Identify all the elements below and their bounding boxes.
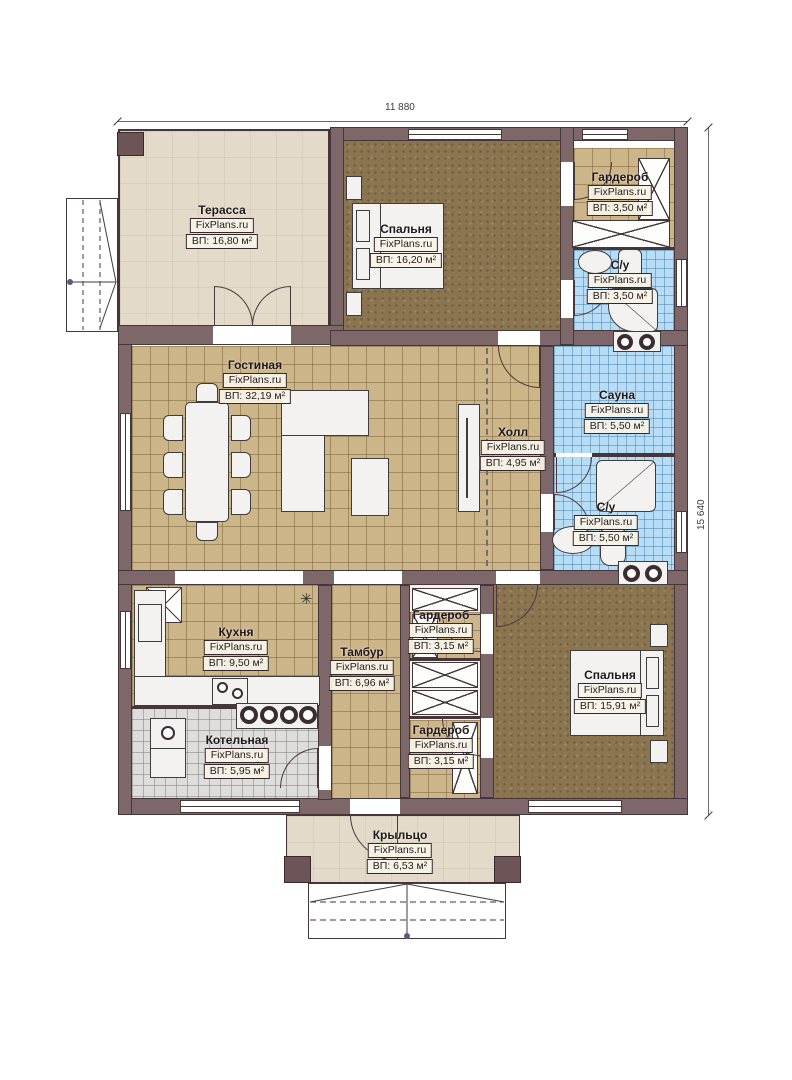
watermark: FixPlans.ru [374,237,439,252]
column-terrace [117,132,144,156]
room-area: ВП: 3,15 м² [408,639,474,654]
watermark: FixPlans.ru [578,683,643,698]
vent-ring-icon [617,334,633,350]
room-name: Спальня [380,222,432,236]
wardrobe-shelf [572,220,670,248]
chair [163,489,183,515]
room-name: Холл [498,425,528,439]
window-kitchen [120,611,131,669]
nightstand [346,176,362,200]
doorway-entrance [350,799,400,814]
room-name: Тамбур [340,645,384,659]
burner-icon [232,688,243,699]
room-label-porch: Крыльцо FixPlans.ru ВП: 6,53 м² [367,828,433,874]
room-name: Гардероб [592,170,649,184]
room-label-bedroom1: Спальня FixPlans.ru ВП: 16,20 м² [370,222,442,268]
pillow [356,210,370,242]
room-label-bath2: С/у FixPlans.ru ВП: 5,50 м² [573,500,639,546]
window-bedroom2 [528,800,622,813]
boiler-line [151,748,185,749]
porch-steps [308,883,506,939]
chair [163,452,183,478]
dining-table [185,402,229,522]
watermark: FixPlans.ru [190,218,255,233]
doorway-bedroom2 [496,571,540,584]
dimension-width: 11 880 [385,102,415,113]
watermark: FixPlans.ru [588,185,653,200]
room-area: ВП: 3,50 м² [587,201,653,216]
burner-icon [260,706,278,724]
room-area: ВП: 4,95 м² [480,456,546,471]
room-label-wardrobe2: Гардероб FixPlans.ru ВП: 3,15 м² [408,608,474,654]
room-label-hall: Холл FixPlans.ru ВП: 4,95 м² [480,425,546,471]
room-name: Сауна [599,388,635,402]
watermark: FixPlans.ru [481,440,546,455]
chair [196,383,218,402]
kitchen-appliance [138,604,162,642]
room-label-living: Гостиная FixPlans.ru ВП: 32,19 м² [219,358,291,404]
watermark: FixPlans.ru [205,748,270,763]
watermark: FixPlans.ru [330,660,395,675]
room-label-tambour: Тамбур FixPlans.ru ВП: 6,96 м² [329,645,395,691]
burner-icon [240,706,258,724]
room-area: ВП: 3,50 м² [587,289,653,304]
room-name: Кухня [218,625,253,639]
tv-icon [466,418,468,498]
wall-right [674,127,688,815]
dimension-height: 15 640 [696,499,707,530]
room-area: ВП: 9,50 м² [203,656,269,671]
room-area: ВП: 5,95 м² [204,764,270,779]
room-label-bedroom2: Спальня FixPlans.ru ВП: 15,91 м² [574,668,646,714]
room-area: ВП: 3,15 м² [408,754,474,769]
room-area: ВП: 5,50 м² [584,419,650,434]
window-bedroom1 [408,129,502,140]
chair [163,415,183,441]
window-boiler [180,800,300,813]
window-wardrobe1 [582,129,628,140]
dimension-line-right [708,127,709,815]
watermark: FixPlans.ru [409,738,474,753]
room-name: Гардероб [413,723,470,737]
vent-ring-icon [639,334,655,350]
room-area: ВП: 32,19 м² [219,389,291,404]
watermark: FixPlans.ru [588,273,653,288]
terrace-steps [66,198,118,332]
room-area: ВП: 16,80 м² [186,234,258,249]
vent-ring-icon [623,565,640,582]
chair [231,452,251,478]
doorway-boiler [319,746,331,790]
room-area: ВП: 6,53 м² [367,859,433,874]
wardrobe-shelf [412,690,478,715]
chair [231,415,251,441]
room-name: Гардероб [413,608,470,622]
room-label-boiler: Котельная FixPlans.ru ВП: 5,95 м² [204,733,270,779]
nightstand [650,624,668,647]
sofa-arm [281,390,369,436]
column-porch-right [494,856,521,883]
dimension-line-top [118,121,688,122]
room-area: ВП: 15,91 м² [574,699,646,714]
window-bath1 [676,259,687,307]
window-bath2 [676,511,687,553]
wall-terrace-bedroom [330,127,344,345]
wall-top [330,127,688,141]
tv-stand [458,404,480,512]
doorway-wardrobe1 [561,162,573,206]
doorway-wardrobe2 [481,614,493,654]
room-area: ВП: 5,50 м² [573,531,639,546]
watermark: FixPlans.ru [574,515,639,530]
window-living [120,413,131,511]
room-label-bath1: С/у FixPlans.ru ВП: 3,50 м² [587,258,653,304]
watermark: FixPlans.ru [409,623,474,638]
room-label-wardrobe1: Гардероб FixPlans.ru ВП: 3,50 м² [587,170,653,216]
nightstand [346,292,362,316]
room-name: С/у [597,500,616,514]
wall-wardrobe-divider1 [410,658,480,661]
room-label-kitchen: Кухня FixPlans.ru ВП: 9,50 м² [203,625,269,671]
floor-plan: ✳ 11 880 15 640 Терасса [0,0,792,1080]
burner-icon [217,682,228,693]
pillow [646,695,659,727]
opening-kitchen [175,571,303,584]
pillow [646,657,659,689]
ceiling-lamp-icon: ✳ [300,590,313,608]
watermark: FixPlans.ru [368,843,433,858]
watermark: FixPlans.ru [585,403,650,418]
room-label-terrace: Терасса FixPlans.ru ВП: 16,80 м² [186,203,258,249]
pillow [356,248,370,280]
room-label-sauna: Сауна FixPlans.ru ВП: 5,50 м² [584,388,650,434]
boiler-dial-icon [161,726,175,740]
doorway-wardrobe3 [481,718,493,758]
room-area: ВП: 6,96 м² [329,676,395,691]
vent-ring-icon [645,565,662,582]
opening-tambour [334,571,402,584]
burner-icon [280,706,298,724]
doorway-terrace [213,326,291,344]
room-name: Терасса [198,203,246,217]
chair [231,489,251,515]
doorway-bath2 [541,494,553,532]
column-porch-left [284,856,311,883]
nightstand [650,740,668,763]
watermark: FixPlans.ru [204,640,269,655]
room-name: С/у [611,258,630,272]
room-label-wardrobe3: Гардероб FixPlans.ru ВП: 3,15 м² [408,723,474,769]
doorway-bedroom1 [498,331,540,345]
wardrobe-shelf [412,662,478,688]
chair [196,522,218,541]
watermark: FixPlans.ru [223,373,288,388]
coffee-table [351,458,389,516]
room-name: Котельная [206,733,269,747]
room-area: ВП: 16,20 м² [370,253,442,268]
doorway-bath1 [561,280,573,318]
room-name: Гостиная [228,358,282,372]
room-floor-tambour [332,585,400,798]
room-name: Спальня [584,668,636,682]
burner-icon [299,706,317,724]
room-name: Крыльцо [373,828,428,842]
